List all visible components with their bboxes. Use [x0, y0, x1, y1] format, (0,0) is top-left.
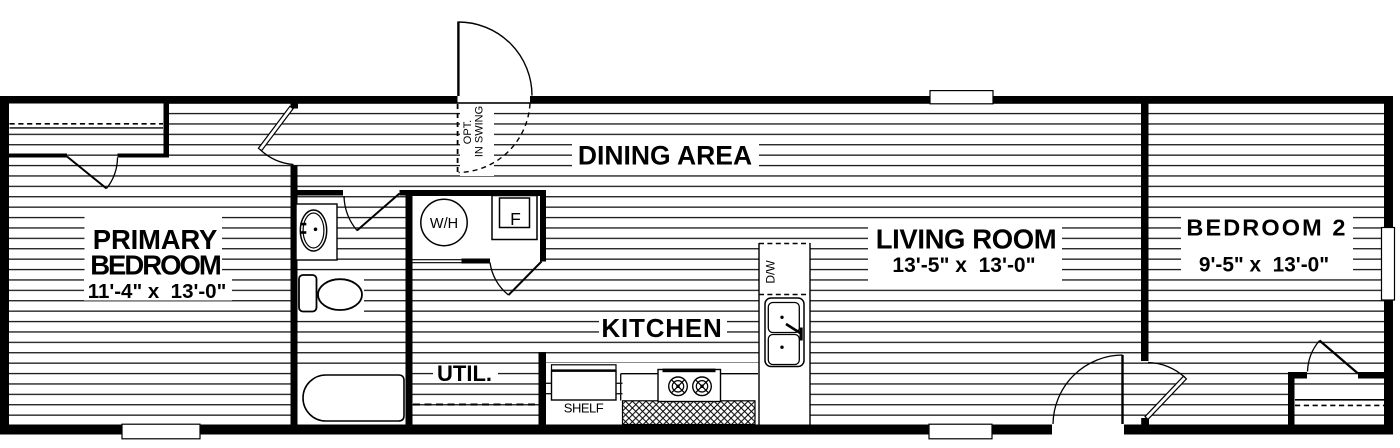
svg-text:13'-5" x 13'-0": 13'-5" x 13'-0" — [892, 254, 1035, 277]
svg-text:11'-4" x 13'-0": 11'-4" x 13'-0" — [88, 280, 227, 303]
svg-text:UTIL.: UTIL. — [437, 361, 492, 386]
svg-text:DINING AREA: DINING AREA — [578, 141, 752, 171]
svg-text:9'-5" x 13'-0": 9'-5" x 13'-0" — [1199, 254, 1329, 277]
svg-text:LIVING ROOM: LIVING ROOM — [876, 224, 1056, 255]
svg-text:OPT.: OPT. — [462, 120, 474, 144]
svg-text:KITCHEN: KITCHEN — [601, 313, 722, 343]
svg-text:BEDROOM: BEDROOM — [90, 250, 221, 281]
svg-text:SHELF: SHELF — [564, 401, 604, 416]
svg-text:D/W: D/W — [764, 260, 778, 284]
svg-text:BEDROOM 2: BEDROOM 2 — [1186, 215, 1347, 241]
svg-text:F: F — [510, 209, 521, 229]
svg-text:W/H: W/H — [430, 216, 458, 232]
svg-text:IN SWING: IN SWING — [473, 106, 485, 157]
